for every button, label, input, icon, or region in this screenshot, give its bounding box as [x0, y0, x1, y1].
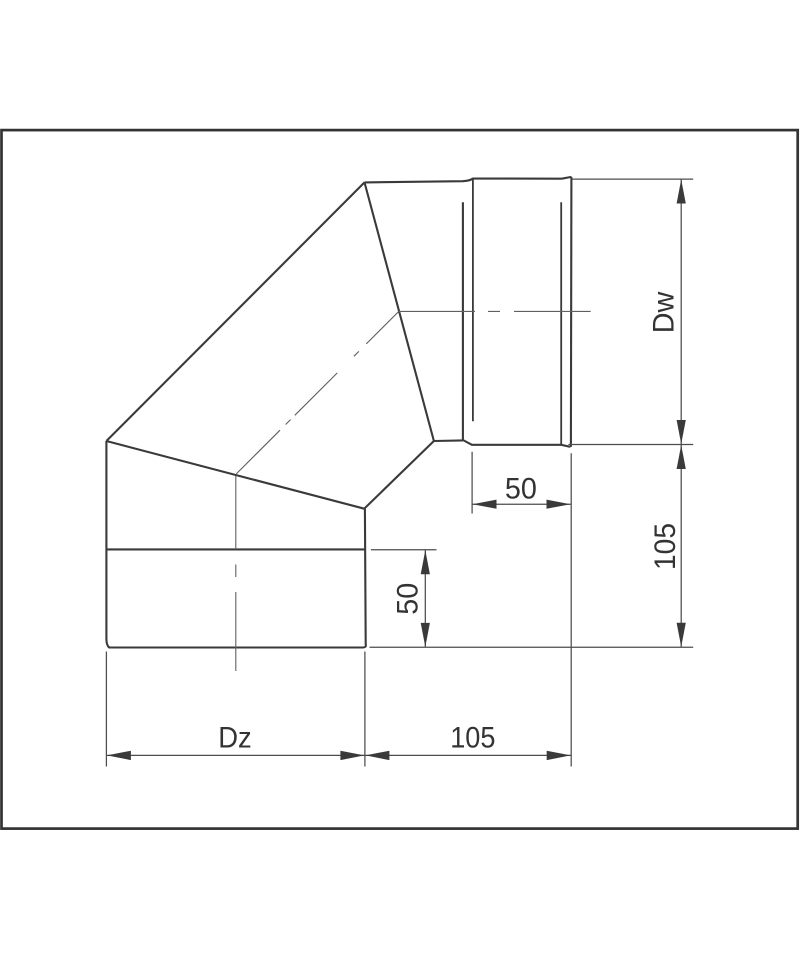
svg-text:Dw: Dw — [648, 291, 681, 333]
svg-text:Dz: Dz — [218, 722, 252, 755]
svg-text:105: 105 — [450, 721, 495, 754]
svg-text:50: 50 — [391, 583, 424, 615]
svg-text:105: 105 — [649, 523, 682, 570]
svg-text:50: 50 — [505, 472, 537, 505]
